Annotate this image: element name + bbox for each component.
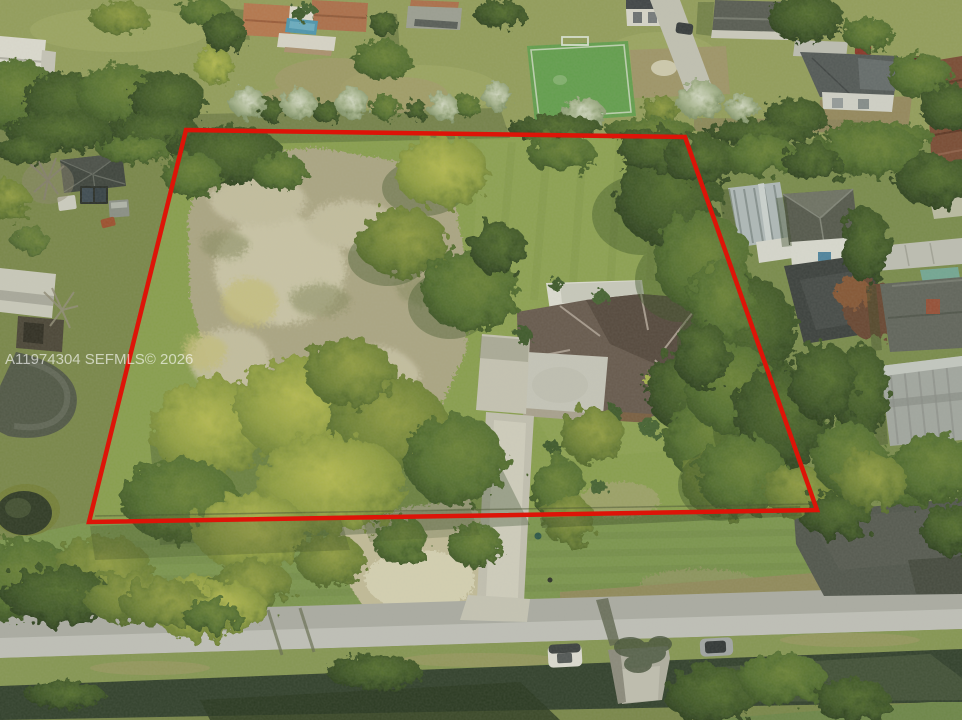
svg-text:A11974304 SEFMLS© 2026: A11974304 SEFMLS© 2026: [5, 351, 193, 368]
